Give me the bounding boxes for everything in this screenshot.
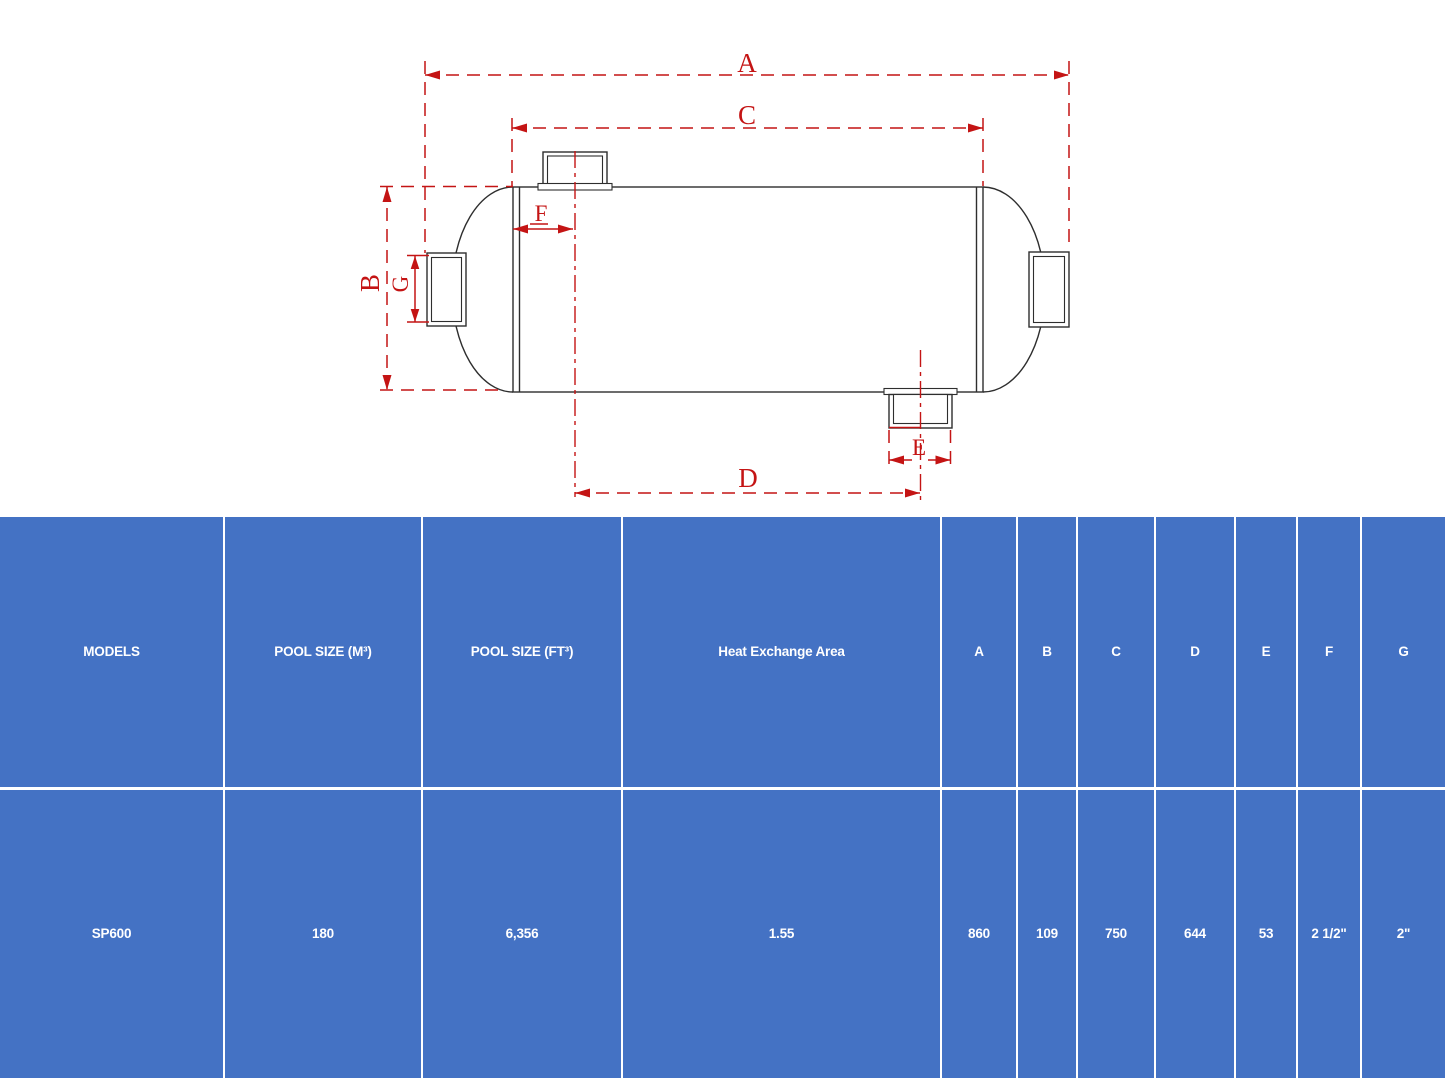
- cell-f: 2 1/2": [1298, 790, 1360, 1078]
- header-cell-a: A: [942, 517, 1016, 787]
- spec-table: MODELS POOL SIZE (M³) POOL SIZE (FT³) He…: [0, 517, 1445, 1078]
- header-cell-pool-size-ft3: POOL SIZE (FT³): [423, 517, 621, 787]
- cell-d: 644: [1156, 790, 1234, 1078]
- dim-label-e: E: [912, 435, 926, 460]
- cell-e: 53: [1236, 790, 1296, 1078]
- dimension-a: A: [425, 48, 1069, 253]
- cell-b: 109: [1018, 790, 1076, 1078]
- header-cell-c: C: [1078, 517, 1154, 787]
- cell-model: SP600: [0, 790, 223, 1078]
- heat-exchanger-diagram: A C B G F: [0, 0, 1445, 517]
- cell-g: 2": [1362, 790, 1445, 1078]
- dim-label-a: A: [737, 48, 757, 78]
- cell-a: 860: [942, 790, 1016, 1078]
- cell-heat-exchange-area: 1.55: [623, 790, 940, 1078]
- dim-label-d: D: [738, 463, 758, 493]
- header-cell-models: MODELS: [0, 517, 223, 787]
- dimension-e: E: [889, 428, 951, 469]
- header-cell-f: F: [1298, 517, 1360, 787]
- header-cell-heat-exchange-area: Heat Exchange Area: [623, 517, 940, 787]
- cell-c: 750: [1078, 790, 1154, 1078]
- dimension-d: D: [575, 463, 920, 498]
- header-cell-b: B: [1018, 517, 1076, 787]
- dim-label-g: G: [388, 276, 413, 293]
- header-cell-g: G: [1362, 517, 1445, 787]
- left-port-inner: [432, 258, 462, 322]
- cell-pool-size-m3: 180: [225, 790, 421, 1078]
- header-cell-pool-size-m3: POOL SIZE (M³): [225, 517, 421, 787]
- dim-label-f: F: [535, 201, 548, 226]
- right-port-inner: [1034, 257, 1065, 323]
- header-cell-e: E: [1236, 517, 1296, 787]
- dim-label-c: C: [738, 100, 756, 130]
- dimension-g: G: [388, 256, 429, 323]
- dim-label-b: B: [355, 274, 385, 292]
- header-cell-d: D: [1156, 517, 1234, 787]
- cell-pool-size-ft3: 6,356: [423, 790, 621, 1078]
- ports: [427, 152, 1069, 428]
- tank-body: [513, 187, 983, 392]
- dimension-f: F: [513, 201, 573, 234]
